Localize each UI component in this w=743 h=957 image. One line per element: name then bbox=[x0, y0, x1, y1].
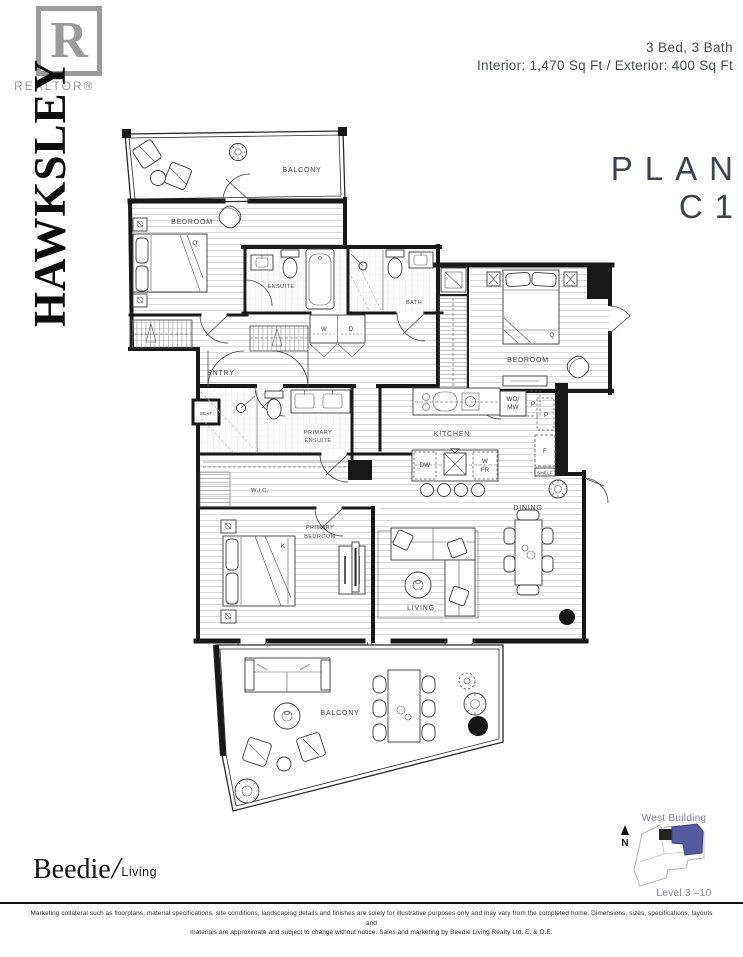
building-name-vertical: HAWKSLEY bbox=[24, 59, 76, 327]
dishwasher-label: DW bbox=[420, 462, 431, 469]
wine-fridge-label-1: W bbox=[482, 458, 488, 465]
sink-icon bbox=[409, 252, 433, 268]
area-summary: Interior: 1,470 Sq Ft / Exterior: 400 Sq… bbox=[477, 58, 733, 73]
side-table-icon bbox=[151, 171, 166, 186]
nightstand-icon bbox=[487, 272, 500, 286]
disclaimer: Marketing collateral such as floorplans,… bbox=[28, 909, 715, 938]
entry-closet bbox=[250, 326, 308, 351]
bathtub-icon bbox=[306, 249, 334, 309]
compass-north-icon: N bbox=[621, 825, 629, 849]
pantry-label: P bbox=[544, 412, 548, 419]
dryer-label: D bbox=[349, 326, 354, 333]
bed-size-label: Q bbox=[549, 332, 554, 339]
nightstand-icon bbox=[133, 218, 147, 231]
svg-text:MW: MW bbox=[507, 404, 518, 411]
balcony-bottom: BALCONY bbox=[216, 645, 503, 811]
wall-oven-microwave: WO/ MW bbox=[500, 391, 526, 416]
side-table-icon bbox=[277, 757, 291, 771]
plan-header: PLAN C1 3 Bed, 3 Bath Interior: 1,470 Sq… bbox=[477, 32, 733, 73]
disclaimer-line-2: materials are approximate and subject to… bbox=[28, 928, 715, 938]
beedie-living-logo: Beedie/Living bbox=[33, 850, 157, 886]
room-label-wic: W.I.C. bbox=[251, 488, 269, 494]
outdoor-dining-table-icon bbox=[373, 670, 435, 742]
bar-stool-icon bbox=[455, 484, 468, 497]
planter-icon bbox=[464, 693, 486, 715]
room-label-dining: DINING bbox=[513, 505, 542, 512]
room-label-primary-ensuite-1: PRIMARY bbox=[304, 430, 332, 436]
fridge-label: F bbox=[543, 448, 547, 455]
entry-closet bbox=[130, 320, 192, 348]
living-wordmark: Living bbox=[121, 865, 157, 879]
keyplan-unit-highlight bbox=[672, 824, 703, 855]
bed-size-label: K bbox=[281, 543, 286, 550]
beedie-slash: / bbox=[112, 850, 121, 885]
room-label-ensuite: ENSUITE bbox=[267, 284, 294, 290]
balcony-top: BALCONY bbox=[122, 127, 347, 203]
floor-plan: BALCONY bbox=[105, 118, 630, 818]
bar-stool-icon bbox=[438, 484, 451, 497]
beedie-wordmark: Beedie bbox=[33, 854, 111, 885]
island-sink-icon bbox=[444, 449, 466, 475]
pantry-label: P bbox=[531, 401, 535, 408]
nightstand-icon bbox=[221, 610, 236, 623]
room-label-entry: ENTRY bbox=[207, 370, 235, 377]
outdoor-sofa-icon bbox=[245, 658, 330, 692]
washer-label: W bbox=[321, 326, 327, 333]
wine-fridge-label-2: FR bbox=[481, 467, 490, 474]
keyplan: West Building N Level 3 –10 bbox=[604, 810, 739, 902]
room-label-bath: BATH bbox=[406, 300, 422, 306]
column bbox=[559, 609, 575, 625]
keyplan-building-label: West Building bbox=[642, 813, 707, 824]
bed-bath-config: 3 Bed, 3 Bath bbox=[477, 40, 733, 55]
double-vanity bbox=[291, 390, 350, 413]
room-label-primary-bedroom-2: BEDROOM bbox=[304, 534, 336, 540]
nightstand-icon bbox=[133, 294, 147, 307]
room-label-living: LIVING bbox=[407, 605, 435, 612]
bar-stool-icon bbox=[472, 484, 485, 497]
svg-text:WO/: WO/ bbox=[507, 396, 520, 403]
sink-icon bbox=[251, 255, 273, 270]
shower-seat: SEAT bbox=[193, 400, 219, 424]
bar-stool-icon bbox=[421, 484, 434, 497]
footer-divider bbox=[0, 902, 743, 904]
seat-label: SEAT bbox=[200, 411, 212, 416]
nightstand-icon bbox=[221, 520, 236, 533]
room-label-balcony-top: BALCONY bbox=[282, 167, 321, 174]
nightstand-icon bbox=[564, 272, 577, 286]
planter-icon bbox=[549, 480, 567, 498]
planter-icon bbox=[230, 144, 247, 161]
room-label-bedroom-1: BEDROOM bbox=[171, 219, 213, 226]
room-label-kitchen: KITCHEN bbox=[434, 431, 470, 438]
disclaimer-line-1: Marketing collateral such as floorplans,… bbox=[28, 909, 715, 928]
bed-size-label: Q bbox=[192, 240, 197, 247]
keyplan-footprint bbox=[634, 824, 704, 886]
planter-dark-icon bbox=[468, 716, 488, 736]
shelf-label: SHELF bbox=[537, 471, 553, 476]
coffee-table-icon bbox=[274, 703, 300, 729]
planter-icon bbox=[235, 779, 259, 803]
svg-text:N: N bbox=[621, 838, 628, 849]
coffee-table-icon bbox=[405, 572, 431, 598]
bedroom2-closet bbox=[439, 296, 467, 389]
tv-icon bbox=[352, 542, 359, 592]
dresser-icon bbox=[503, 376, 547, 386]
room-label-primary-ensuite-2: ENSUITE bbox=[304, 438, 331, 444]
room-label-primary-bedroom-1: PRIMARY bbox=[306, 525, 334, 531]
cooktop-counter bbox=[413, 388, 500, 415]
room-label-balcony-bottom: BALCONY bbox=[320, 710, 359, 717]
keyplan-level-label: Level 3 –10 bbox=[656, 888, 711, 899]
linen-closet bbox=[441, 268, 466, 292]
room-label-bedroom-2: BEDROOM bbox=[507, 357, 549, 364]
